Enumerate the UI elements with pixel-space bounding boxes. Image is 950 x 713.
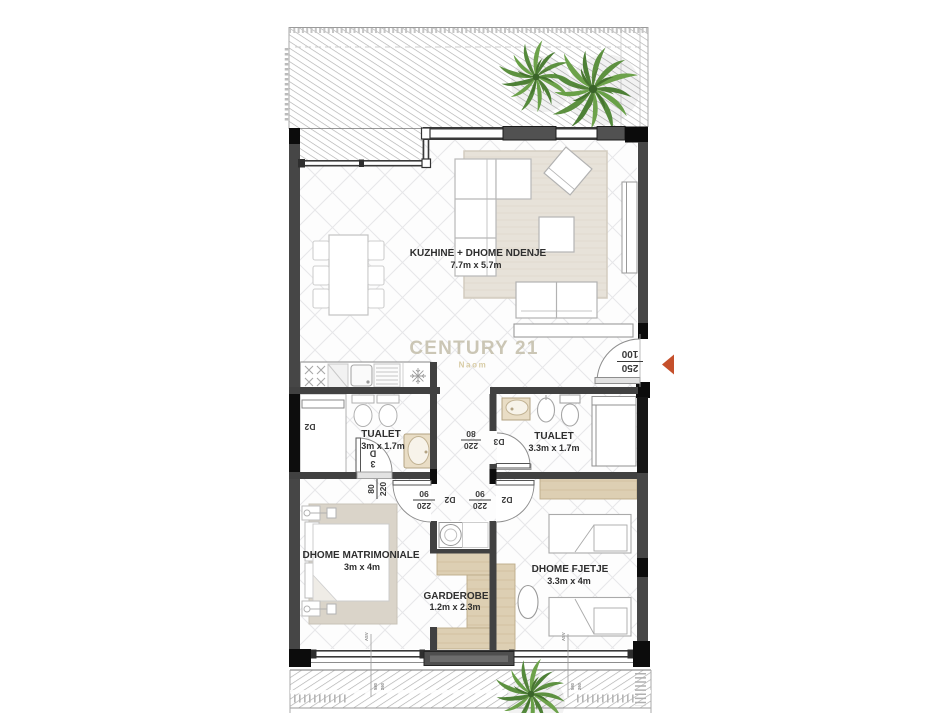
- svg-text:Naom: Naom: [459, 361, 488, 370]
- svg-text:260: 260: [577, 682, 582, 690]
- svg-text:3.3m x 4m: 3.3m x 4m: [547, 576, 591, 586]
- svg-text:220: 220: [378, 482, 388, 496]
- svg-text:3m x 4m: 3m x 4m: [344, 562, 380, 572]
- svg-text:GARDEROBE: GARDEROBE: [423, 591, 488, 602]
- svg-text:80: 80: [466, 429, 476, 439]
- svg-text:100: 100: [621, 348, 638, 359]
- svg-text:90: 90: [419, 489, 429, 499]
- svg-text:260: 260: [380, 682, 385, 690]
- svg-text:TUALET: TUALET: [361, 429, 400, 440]
- svg-text:DHOME MATRIMONIALE: DHOME MATRIMONIALE: [302, 550, 419, 561]
- svg-text:7.7m x 5.7m: 7.7m x 5.7m: [450, 260, 501, 270]
- svg-text:250: 250: [621, 362, 638, 373]
- svg-text:580: 580: [570, 682, 575, 690]
- svg-text:ASV: ASV: [561, 632, 566, 641]
- svg-text:D3: D3: [493, 437, 504, 447]
- svg-text:580: 580: [373, 682, 378, 690]
- svg-text:CENTURY 21: CENTURY 21: [409, 338, 538, 359]
- svg-text:80: 80: [366, 484, 376, 494]
- svg-text:220: 220: [464, 441, 478, 451]
- svg-text:3: 3: [370, 459, 375, 469]
- svg-text:220: 220: [473, 501, 487, 511]
- svg-text:D2: D2: [444, 495, 455, 505]
- svg-text:D2: D2: [501, 495, 512, 505]
- svg-text:KUZHINE + DHOME NDENJE: KUZHINE + DHOME NDENJE: [410, 248, 547, 259]
- svg-text:ASV: ASV: [364, 632, 369, 641]
- svg-text:TUALET: TUALET: [534, 431, 573, 442]
- svg-text:D2: D2: [304, 422, 315, 432]
- svg-text:1.2m x 2.3m: 1.2m x 2.3m: [429, 602, 480, 612]
- svg-text:90: 90: [475, 489, 485, 499]
- svg-text:3m x 1.7m: 3m x 1.7m: [361, 441, 405, 451]
- svg-text:3.3m x 1.7m: 3.3m x 1.7m: [528, 443, 579, 453]
- svg-text:220: 220: [417, 501, 431, 511]
- svg-text:DHOME FJETJE: DHOME FJETJE: [532, 564, 609, 575]
